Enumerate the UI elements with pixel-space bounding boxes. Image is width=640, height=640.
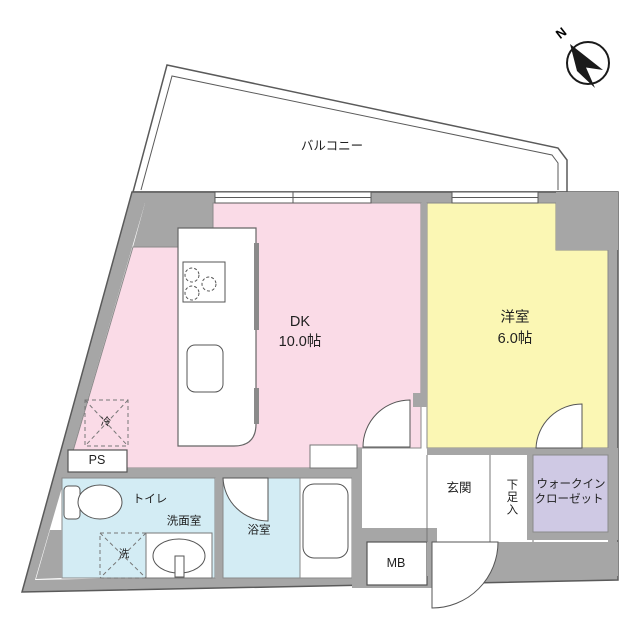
bathroom-wall-left [215,478,223,578]
pipe-space-label: PS [89,454,106,468]
kitchen-backsplash-bottom [254,388,259,424]
north-compass-icon [567,42,609,88]
floor-plan: N バルコニー DK 10.0帖 洋室 6.0帖 冷 PS トイレ 洗面室 洗 … [0,0,640,640]
kitchen-backsplash-top [254,243,259,330]
counter-box [310,445,357,468]
divider-wall [421,203,427,393]
refrigerator-label: 冷 [101,417,112,429]
western-room-name: 洋室 [501,311,530,327]
sink-icon [146,533,212,578]
dk-room-name: DK [290,315,310,331]
bathroom-label: 浴室 [248,525,271,538]
entrance-label: 玄関 [446,482,471,496]
western-room-size: 6.0帖 [498,332,533,348]
walk-in-closet-label-1: ウォークイン [537,479,606,492]
kitchen-counter [178,228,256,446]
meter-box-label: MB [387,557,406,571]
wall-notch [556,192,618,250]
entrance-top-wall [427,448,533,455]
toilet-icon [64,485,122,519]
toilet-label: トイレ [133,494,168,507]
floor-plan-drawing [0,0,640,640]
stove-icon [183,262,225,302]
shoe-storage-label: 下足入 [505,478,518,516]
dk-room-size: 10.0帖 [279,335,322,351]
balcony-area [133,65,567,192]
walk-in-closet-label-2: クローゼット [535,494,604,507]
balcony-label: バルコニー [301,140,363,154]
washer-label: 洗 [119,549,130,561]
bathtub-icon [303,484,348,558]
divider-wall-stub [413,393,427,407]
entrance-door-arc [432,542,498,608]
dk-window [215,192,371,203]
kitchen-sink-icon [187,345,223,392]
washroom-label: 洗面室 [167,516,202,529]
western-window [452,192,538,203]
